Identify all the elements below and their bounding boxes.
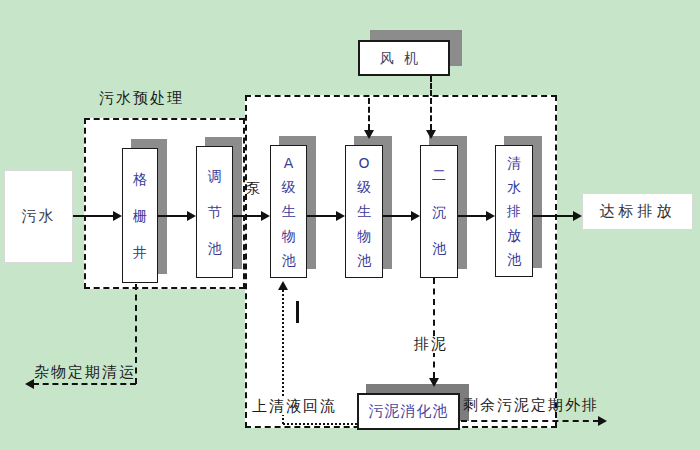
influent-box: 污水	[4, 170, 73, 263]
sludge-discharge-line	[433, 278, 435, 378]
flow-line-effluent	[533, 215, 574, 217]
supernatant-arrowhead	[278, 281, 288, 290]
flow-line-pump	[233, 215, 262, 217]
tank-label: 格栅井	[123, 149, 157, 282]
regulating-tank: 调节池	[196, 146, 233, 278]
fan-air-line	[430, 76, 432, 96]
fan-label: 风机	[380, 51, 428, 65]
excess-sludge-arrowhead	[598, 416, 607, 426]
fan-air-line-sedimentation	[430, 98, 432, 130]
fan-air-arrowhead	[426, 130, 436, 139]
valve-tick-mark	[296, 301, 299, 323]
sludge-digester-box: 污泥消化池	[357, 393, 460, 430]
excess-sludge-line	[461, 420, 599, 422]
flow-arrowhead	[261, 211, 270, 221]
fan-box: 风机	[358, 40, 450, 76]
pump-label: 泵	[246, 181, 262, 196]
flow-arrowhead	[113, 211, 122, 221]
tank-label: 调节池	[197, 147, 232, 277]
grid-well-tank: 格栅井	[122, 148, 158, 283]
clear-water-discharge-tank: 清水排放池	[495, 145, 533, 277]
excess-sludge-label: 剩余污泥定期外排	[463, 397, 599, 414]
debris-line-horizontal	[33, 383, 136, 385]
diagram-canvas: 污水预处理 杂物定期清运 上清液回流 排泥 剩余污泥定期外排 污水 达标排放 泵	[0, 0, 700, 450]
tank-label: O级生物池	[346, 146, 382, 277]
fan-air-line-o-tank	[368, 98, 370, 130]
supernatant-line-horizontal	[283, 423, 357, 425]
flow-arrowhead	[187, 211, 196, 221]
fan-air-arrowhead	[364, 130, 374, 139]
debris-removal-label: 杂物定期清运	[34, 364, 136, 381]
digester-label: 污泥消化池	[369, 404, 449, 419]
flow-line	[458, 215, 487, 217]
flow-line	[158, 215, 188, 217]
secondary-sedimentation-tank: 二沉池	[420, 145, 458, 278]
sludge-discharge-arrowhead	[429, 378, 439, 387]
influent-label: 污水	[22, 209, 56, 224]
flow-arrowhead	[573, 211, 582, 221]
flow-arrowhead	[336, 211, 345, 221]
tank-label: 二沉池	[421, 146, 457, 277]
flow-arrowhead	[411, 211, 420, 221]
tank-label: 清水排放池	[496, 146, 532, 276]
effluent-box: 达标排放	[582, 193, 693, 230]
flow-line	[307, 215, 337, 217]
debris-arrowhead	[25, 379, 34, 389]
supernatant-return-label: 上清液回流	[252, 398, 337, 415]
flow-line	[383, 215, 412, 217]
flow-line-influent	[73, 215, 114, 217]
a-level-bio-tank: A级生物池	[270, 145, 307, 278]
o-level-bio-tank: O级生物池	[345, 145, 383, 278]
pretreatment-label: 污水预处理	[99, 90, 184, 107]
flow-arrowhead	[486, 211, 495, 221]
effluent-label: 达标排放	[600, 204, 676, 219]
sludge-discharge-label: 排泥	[414, 336, 448, 353]
tank-label: A级生物池	[271, 146, 306, 277]
